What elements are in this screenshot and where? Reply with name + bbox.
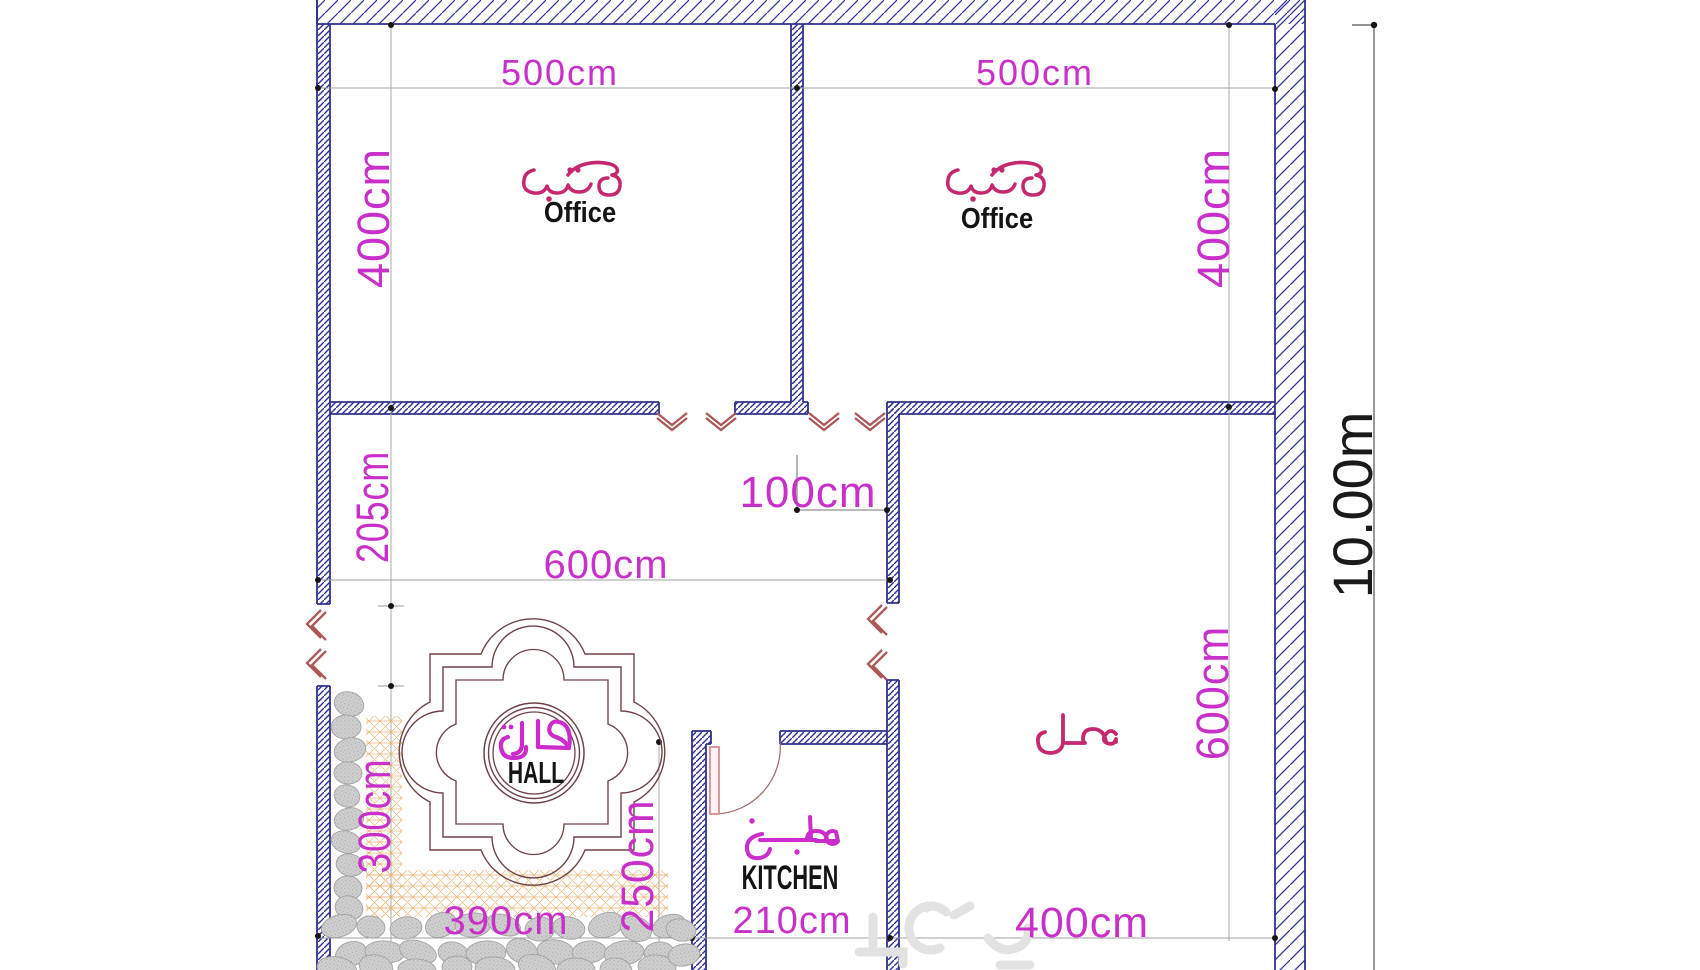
svg-text:HALL: HALL <box>508 755 564 790</box>
svg-text:600cm: 600cm <box>543 543 668 587</box>
svg-text:400cm: 400cm <box>348 148 399 288</box>
svg-text:10.00m: 10.00m <box>1321 412 1384 599</box>
svg-text:100cm: 100cm <box>739 468 876 517</box>
svg-text:205cm: 205cm <box>347 451 398 563</box>
svg-text:KITCHEN: KITCHEN <box>742 859 839 897</box>
svg-text:500cm: 500cm <box>501 52 619 93</box>
svg-text:500cm: 500cm <box>976 52 1094 93</box>
svg-text:210cm: 210cm <box>732 900 851 942</box>
svg-text:Office: Office <box>961 201 1033 234</box>
svg-text:Office: Office <box>544 195 616 228</box>
svg-text:250cm: 250cm <box>613 799 663 932</box>
svg-text:390cm: 390cm <box>443 899 568 943</box>
svg-text:400cm: 400cm <box>1188 148 1239 288</box>
svg-text:300cm: 300cm <box>350 759 400 874</box>
svg-text:400cm: 400cm <box>1015 899 1149 947</box>
svg-text:600cm: 600cm <box>1188 626 1238 760</box>
